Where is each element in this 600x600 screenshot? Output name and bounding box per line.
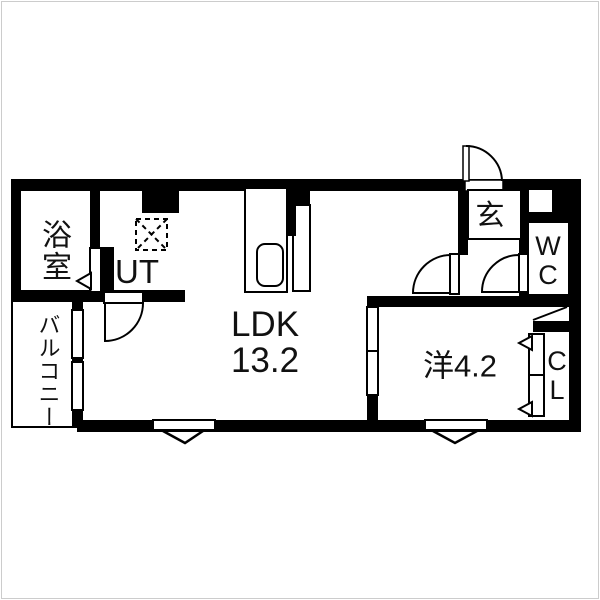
window-western-south-chevron [433, 431, 477, 443]
room-label-closet: C L [547, 347, 567, 405]
bathroom-door-arrow [77, 273, 91, 289]
room-label-western-room: 洋4.2 [423, 341, 497, 386]
entrance-alcove [529, 190, 552, 212]
window-balcony-upper-pane [72, 310, 83, 358]
wc-door-leaf [519, 254, 528, 292]
room-label-balcony: バルコニー [37, 314, 60, 429]
floorplan: 浴室 UT LDK 13.2 玄 W C 洋4.2 C L バルコニー [0, 0, 600, 600]
wall-ps-block [142, 190, 179, 213]
wall-cl-top [533, 321, 569, 332]
ldk-area: 13.2 [231, 343, 299, 379]
ut-door-arc [105, 303, 143, 341]
ut-door-leaf [104, 292, 143, 303]
wc-letter-c: C [535, 261, 560, 290]
cl-letter-c: C [547, 347, 567, 376]
window-ldk-south-chevron [163, 431, 203, 443]
window-western-south [425, 420, 487, 430]
entry-door-leaf [463, 146, 469, 181]
wall-western-top [367, 296, 581, 307]
room-label-utility: UT [115, 253, 159, 291]
western-slider-panel-upper [367, 307, 378, 351]
wall-kitchen-stub-top [296, 190, 310, 206]
wc-door-arc [482, 255, 519, 292]
kitchen-sink [257, 244, 283, 286]
window-ldk-south [153, 420, 215, 430]
entry-door-arc [466, 146, 502, 181]
room-label-bathroom: 浴室 [37, 219, 69, 283]
wall-western-left-lower [367, 395, 378, 420]
floorplan-drawing [0, 0, 600, 600]
cl-letter-l: L [547, 376, 567, 405]
cl-arrow-lower [519, 402, 532, 416]
window-balcony-lower-pane [72, 362, 83, 410]
western-slider-panel-lower [367, 351, 378, 395]
room-label-entrance: 玄 [475, 192, 504, 234]
ldk-name: LDK [231, 307, 299, 343]
wc-letter-w: W [535, 232, 560, 261]
room-label-ldk: LDK 13.2 [231, 307, 299, 379]
cl-arrow-upper [519, 336, 532, 350]
hall-door-arc [413, 255, 451, 293]
room-label-toilet: W C [535, 232, 560, 290]
wall-outer-left [11, 179, 21, 300]
hall-door-leaf [450, 254, 459, 294]
wall-genkan-left [458, 190, 468, 255]
